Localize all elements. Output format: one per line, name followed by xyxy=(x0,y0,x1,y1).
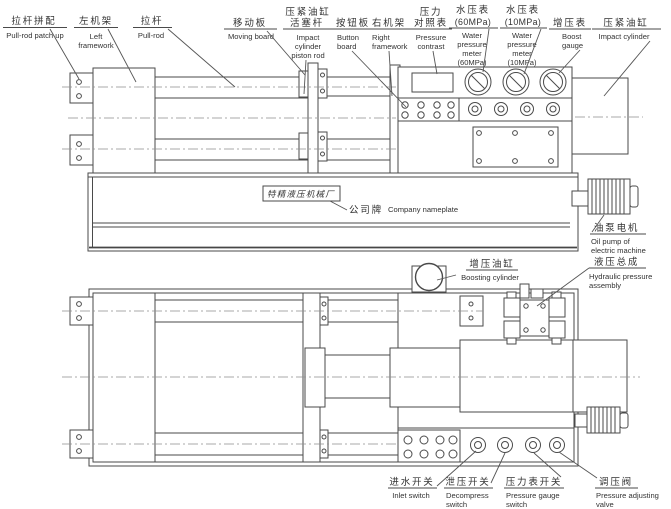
label-zh: (10MPa) xyxy=(505,17,542,27)
label-zh: 压紧油缸 xyxy=(603,17,648,29)
leader-line xyxy=(330,201,347,210)
label-boost-gauge: 增压表 Boost gauge xyxy=(549,17,591,73)
label-en: Moving board xyxy=(228,32,274,41)
label-en: valve xyxy=(596,500,614,509)
label-pull-rod-patch-up: 拉杆拼配 Pull-rod patch up xyxy=(3,15,79,79)
water-pressure-gauge-60 xyxy=(465,69,491,95)
pressure-gauge-switch-knob xyxy=(526,438,541,453)
label-en: cylinder xyxy=(295,42,322,51)
bottom-view xyxy=(70,264,628,467)
company-nameplate-plate: 特精液压机械厂 xyxy=(263,186,340,201)
label-en: Pull-rod xyxy=(138,31,164,40)
label-water-meter-10: 水压表 (10MPa) Water pressure meter (10MPa) xyxy=(500,4,547,74)
hydraulic-assembly-block xyxy=(504,284,565,344)
label-zh: 增压油缸 xyxy=(469,258,514,270)
label-zh: 油泵电机 xyxy=(594,222,639,234)
label-zh: 公司牌 xyxy=(349,204,383,216)
label-water-meter-60: 水压表 (60MPa) Water pressure meter (60MPa) xyxy=(449,4,498,72)
label-zh: 液压总成 xyxy=(594,256,639,268)
machine-diagram: 特精液压机械厂 xyxy=(0,0,671,509)
label-en: meter xyxy=(462,49,482,58)
label-en: contrast xyxy=(417,42,445,51)
label-en: Boosting cylinder xyxy=(461,273,519,282)
label-company-nameplate: 公司牌 Company nameplate xyxy=(330,201,458,216)
label-oil-pump: 油泵电机 Oil pump of electric machine xyxy=(590,215,646,255)
label-en: Company nameplate xyxy=(388,205,458,214)
label-zh: 左机架 xyxy=(79,15,113,27)
pull-rod-patch-brackets-plan xyxy=(70,297,93,458)
label-en: Inlet switch xyxy=(392,491,430,500)
label-en: Water xyxy=(512,31,532,40)
label-zh: 泄压开关 xyxy=(445,476,490,488)
left-framework-plan xyxy=(93,293,155,462)
left-framework-block xyxy=(93,68,155,173)
label-zh: 拉杆 xyxy=(141,15,164,27)
label-zh: 移动板 xyxy=(233,17,267,29)
label-zh: 调压阀 xyxy=(599,476,633,488)
nameplate-text: 特精液压机械厂 xyxy=(267,189,335,199)
piston-rod-block xyxy=(318,96,390,139)
leader-line xyxy=(50,29,79,79)
label-en: switch xyxy=(446,500,467,509)
button-grid-plan xyxy=(404,436,457,458)
label-en: Oil pump of xyxy=(591,237,631,246)
boosting-cylinder-circle xyxy=(412,264,446,293)
label-en: Impact xyxy=(297,33,321,42)
label-zh: 右机架 xyxy=(372,17,406,29)
decompress-switch-knob xyxy=(498,438,513,453)
label-boosting-cylinder: 增压油缸 Boosting cylinder xyxy=(437,258,519,282)
center-shaft-plan xyxy=(305,348,460,407)
label-en: Boost xyxy=(562,32,582,41)
label-zh: 按钮板 xyxy=(336,17,370,29)
label-en: pressure xyxy=(457,40,487,49)
pressure-adjusting-valve-knob xyxy=(550,438,565,453)
label-en: framework xyxy=(372,42,408,51)
label-pressure-contrast: 压力 对照表 Pressure contrast xyxy=(412,6,452,74)
label-zh: (60MPa) xyxy=(455,17,492,27)
label-en: Pressure xyxy=(416,33,446,42)
machine-bed xyxy=(88,173,578,251)
label-zh: 活塞杆 xyxy=(290,17,324,29)
label-zh: 压紧油缸 xyxy=(285,6,330,18)
label-zh: 水压表 xyxy=(456,4,490,16)
diagram-page: 特精液压机械厂 xyxy=(0,0,671,509)
label-decompress-switch: 泄压开关 Decompress switch xyxy=(444,453,505,509)
label-en: Pressure adjusting xyxy=(596,491,659,500)
label-en: assembly xyxy=(589,281,621,290)
label-en: Decompress xyxy=(446,491,489,500)
label-en: Button xyxy=(337,33,359,42)
label-en: meter xyxy=(512,49,532,58)
label-zh: 水压表 xyxy=(506,4,540,16)
label-en: pressure xyxy=(507,40,537,49)
label-en: Pressure gauge xyxy=(506,491,560,500)
water-pressure-gauge-10 xyxy=(503,69,529,95)
label-en: Impact cylinder xyxy=(598,32,650,41)
label-en: board xyxy=(337,42,356,51)
boost-gauge-dial xyxy=(540,69,566,95)
label-zh: 拉杆拼配 xyxy=(11,15,56,27)
oil-pump-motor-side xyxy=(572,179,638,214)
leader-line xyxy=(168,29,235,87)
label-en: (10MPa) xyxy=(507,58,537,67)
leader-line xyxy=(534,453,561,477)
label-en: Left xyxy=(90,32,104,41)
label-en: framework xyxy=(78,41,114,50)
label-en: Right xyxy=(372,33,391,42)
label-en: piston rod xyxy=(291,51,324,60)
bottom-control-panel xyxy=(398,428,574,462)
label-en: (60MPa) xyxy=(457,58,487,67)
control-panel xyxy=(398,67,572,173)
impact-cylinder-plan xyxy=(460,340,627,412)
top-view: 特精液压机械厂 xyxy=(70,63,638,251)
label-en: electric machine xyxy=(591,246,646,255)
label-pressure-gauge-switch: 压力表开关 Pressure gauge switch xyxy=(504,453,564,509)
label-zh: 增压表 xyxy=(553,17,587,29)
label-zh: 压力表开关 xyxy=(506,476,563,488)
label-en: Hydraulic pressure xyxy=(589,272,652,281)
label-en: gauge xyxy=(562,41,583,50)
label-zh: 压力 xyxy=(420,6,443,18)
label-zh: 对照表 xyxy=(414,17,448,29)
label-en: Water xyxy=(462,31,482,40)
inlet-switch-knob xyxy=(471,438,486,453)
label-zh: 进水开关 xyxy=(389,476,434,488)
label-en: switch xyxy=(506,500,527,509)
leader-line xyxy=(491,453,505,483)
impact-cylinder-body xyxy=(572,78,628,154)
